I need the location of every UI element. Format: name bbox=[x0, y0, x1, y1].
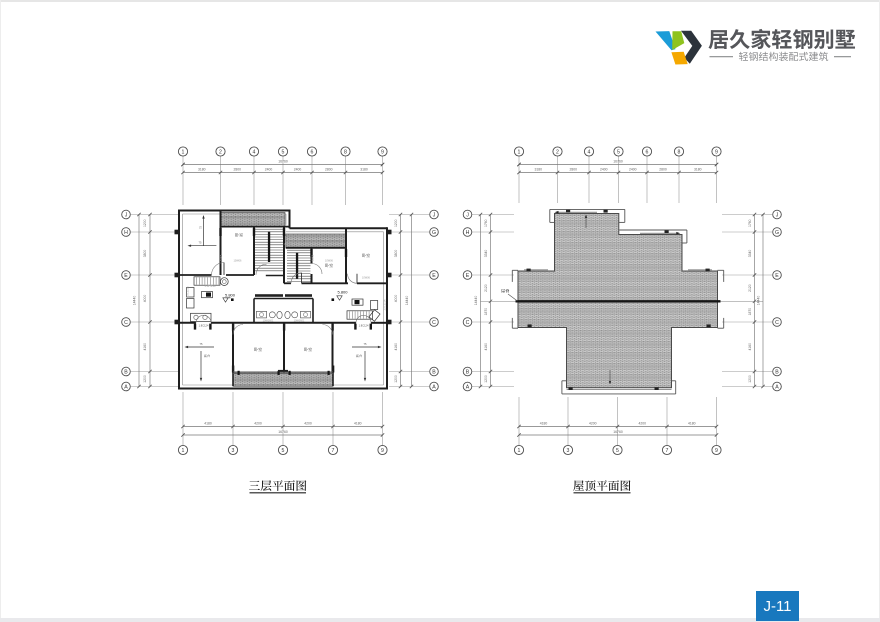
svg-text:1200: 1200 bbox=[394, 375, 398, 383]
svg-text:5: 5 bbox=[282, 448, 285, 454]
svg-text:3180: 3180 bbox=[198, 168, 206, 172]
svg-text:4180: 4180 bbox=[688, 422, 696, 426]
svg-text:4180: 4180 bbox=[540, 422, 548, 426]
svg-text:1.5C121A: 1.5C121A bbox=[384, 299, 387, 310]
svg-text:A: A bbox=[432, 384, 436, 390]
svg-text:2800: 2800 bbox=[325, 168, 333, 172]
svg-text:B: B bbox=[466, 369, 470, 375]
svg-text:1200: 1200 bbox=[143, 219, 147, 227]
svg-text:5W05: 5W05 bbox=[312, 254, 315, 261]
svg-text:A: A bbox=[124, 384, 128, 390]
svg-text:1.5C12: 1.5C12 bbox=[283, 243, 292, 246]
svg-text:14440: 14440 bbox=[756, 296, 760, 306]
svg-text:1: 1 bbox=[518, 448, 521, 454]
svg-text:2120: 2120 bbox=[748, 284, 752, 292]
svg-text:4000: 4000 bbox=[394, 295, 398, 303]
svg-text:1.8C124: 1.8C124 bbox=[199, 324, 209, 328]
svg-text:16760: 16760 bbox=[613, 430, 623, 434]
svg-text:4160: 4160 bbox=[484, 343, 488, 351]
svg-text:1.8C124: 1.8C124 bbox=[359, 324, 369, 328]
svg-text:1870: 1870 bbox=[484, 308, 488, 316]
svg-text:2800: 2800 bbox=[659, 168, 667, 172]
svg-text:A: A bbox=[775, 384, 779, 390]
svg-text:5.800: 5.800 bbox=[337, 289, 348, 294]
svg-text:2800: 2800 bbox=[233, 168, 241, 172]
svg-text:H: H bbox=[124, 230, 128, 236]
svg-text:A: A bbox=[466, 384, 470, 390]
svg-text:2120: 2120 bbox=[484, 284, 488, 292]
svg-text:1: 1 bbox=[182, 149, 185, 155]
svg-text:3: 3 bbox=[232, 448, 235, 454]
svg-text:4200: 4200 bbox=[304, 422, 312, 426]
svg-text:1200: 1200 bbox=[143, 375, 147, 383]
svg-text:J: J bbox=[776, 212, 779, 218]
svg-text:1200: 1200 bbox=[394, 219, 398, 227]
svg-text:4200: 4200 bbox=[638, 422, 646, 426]
svg-text:1200: 1200 bbox=[484, 375, 488, 383]
svg-text:4200: 4200 bbox=[589, 422, 597, 426]
svg-text:2: 2 bbox=[219, 149, 222, 155]
svg-text:E: E bbox=[775, 273, 779, 279]
svg-text:2400: 2400 bbox=[265, 168, 273, 172]
svg-text:E: E bbox=[466, 273, 470, 279]
svg-text:4: 4 bbox=[253, 149, 256, 155]
svg-text:4: 4 bbox=[588, 149, 591, 155]
svg-text:16760: 16760 bbox=[278, 159, 288, 163]
svg-text:14440: 14440 bbox=[133, 296, 137, 306]
svg-text:4000: 4000 bbox=[143, 295, 147, 303]
svg-text:E: E bbox=[124, 273, 128, 279]
svg-text:3180: 3180 bbox=[360, 168, 368, 172]
svg-text:14440: 14440 bbox=[474, 296, 478, 306]
svg-text:16760: 16760 bbox=[278, 430, 288, 434]
svg-text:5.12T21A: 5.12T21A bbox=[205, 285, 216, 288]
svg-text:1: 1 bbox=[182, 448, 185, 454]
svg-text:C: C bbox=[466, 320, 470, 326]
svg-text:1870: 1870 bbox=[748, 308, 752, 316]
svg-text:9: 9 bbox=[715, 448, 718, 454]
svg-text:10W0601: 10W0601 bbox=[263, 319, 274, 322]
svg-text:B: B bbox=[124, 369, 128, 375]
svg-text:1: 1 bbox=[518, 149, 521, 155]
svg-text:3: 3 bbox=[567, 448, 570, 454]
svg-text:5: 5 bbox=[617, 149, 620, 155]
svg-text:3800: 3800 bbox=[394, 250, 398, 258]
svg-text:75: 75 bbox=[364, 342, 367, 346]
svg-text:10W06: 10W06 bbox=[325, 260, 334, 263]
svg-text:75: 75 bbox=[199, 226, 203, 229]
svg-text:1200: 1200 bbox=[748, 375, 752, 383]
svg-text:4180: 4180 bbox=[354, 422, 362, 426]
svg-text:C: C bbox=[775, 320, 779, 326]
svg-text:3800: 3800 bbox=[143, 250, 147, 258]
svg-text:4160: 4160 bbox=[394, 343, 398, 351]
svg-text:75: 75 bbox=[200, 342, 203, 346]
svg-text:9: 9 bbox=[381, 149, 384, 155]
svg-text:H: H bbox=[466, 230, 470, 236]
svg-text:J: J bbox=[466, 212, 469, 218]
svg-text:4160: 4160 bbox=[748, 343, 752, 351]
svg-text:2400: 2400 bbox=[600, 168, 608, 172]
svg-text:3180: 3180 bbox=[534, 168, 542, 172]
svg-text:E: E bbox=[432, 273, 436, 279]
svg-text:1760: 1760 bbox=[484, 219, 488, 227]
svg-text:2400: 2400 bbox=[629, 168, 637, 172]
svg-text:3180: 3180 bbox=[694, 168, 702, 172]
svg-text:10W06: 10W06 bbox=[362, 277, 371, 280]
svg-text:8: 8 bbox=[344, 149, 347, 155]
svg-text:1760: 1760 bbox=[748, 219, 752, 227]
svg-text:5.800: 5.800 bbox=[225, 292, 236, 297]
svg-text:14440: 14440 bbox=[405, 296, 409, 306]
svg-text:75: 75 bbox=[199, 241, 202, 245]
svg-text:5W05: 5W05 bbox=[220, 254, 223, 261]
svg-text:6: 6 bbox=[311, 149, 314, 155]
svg-text:7: 7 bbox=[666, 448, 669, 454]
svg-text:2800: 2800 bbox=[569, 168, 577, 172]
svg-text:8: 8 bbox=[678, 149, 681, 155]
svg-text:J: J bbox=[125, 212, 128, 218]
svg-text:9: 9 bbox=[715, 149, 718, 155]
svg-text:C: C bbox=[432, 320, 436, 326]
svg-text:2400: 2400 bbox=[294, 168, 302, 172]
svg-text:4160: 4160 bbox=[143, 343, 147, 351]
svg-text:6: 6 bbox=[646, 149, 649, 155]
svg-text:B: B bbox=[432, 369, 436, 375]
svg-text:5: 5 bbox=[616, 448, 619, 454]
svg-text:J: J bbox=[433, 212, 436, 218]
svg-text:5: 5 bbox=[282, 149, 285, 155]
svg-text:3340: 3340 bbox=[748, 250, 752, 258]
svg-text:G: G bbox=[775, 230, 779, 236]
svg-text:2: 2 bbox=[556, 149, 559, 155]
svg-text:10W06: 10W06 bbox=[234, 260, 243, 263]
svg-text:7: 7 bbox=[332, 448, 335, 454]
svg-text:B: B bbox=[775, 369, 779, 375]
svg-text:C: C bbox=[124, 320, 128, 326]
svg-text:4200: 4200 bbox=[254, 422, 262, 426]
svg-text:1.5C121A: 1.5C121A bbox=[187, 286, 190, 297]
svg-text:16760: 16760 bbox=[613, 159, 623, 163]
svg-text:10W0601: 10W0601 bbox=[294, 319, 305, 322]
svg-text:4180: 4180 bbox=[204, 422, 212, 426]
svg-text:3340: 3340 bbox=[484, 250, 488, 258]
svg-text:9: 9 bbox=[381, 448, 384, 454]
svg-text:G: G bbox=[432, 230, 436, 236]
